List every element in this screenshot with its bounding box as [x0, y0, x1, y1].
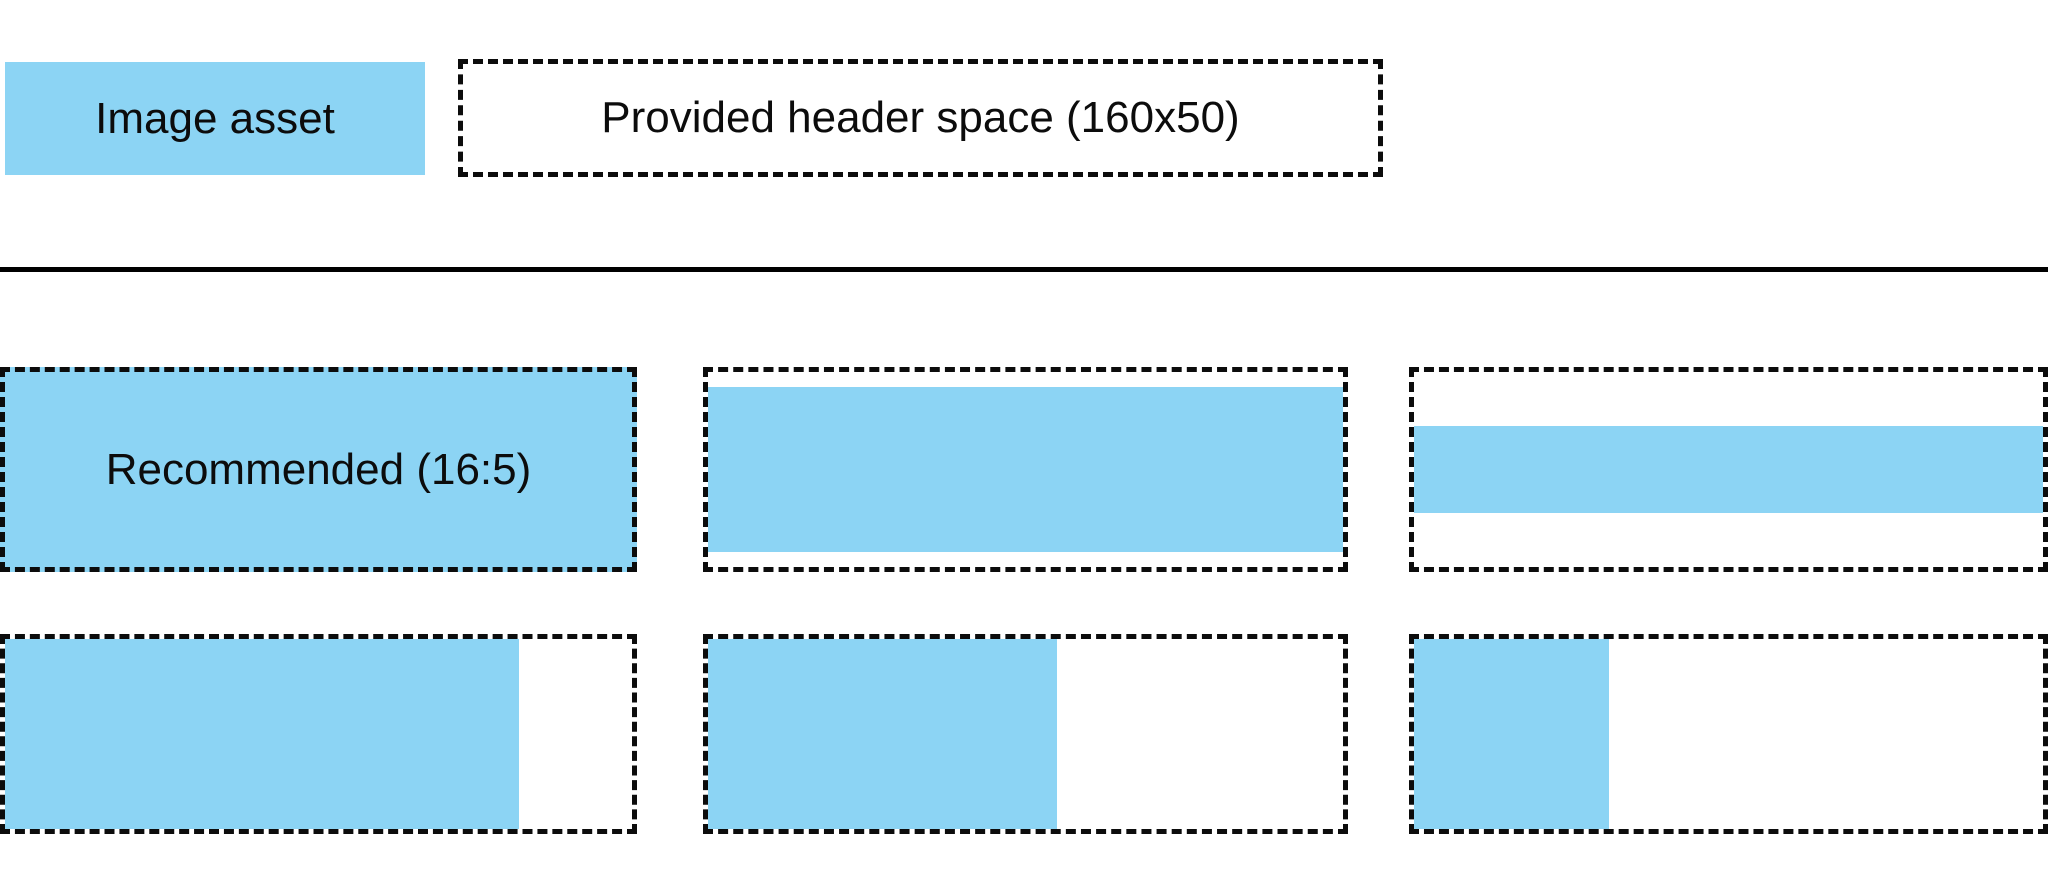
divider-line	[0, 267, 2048, 272]
legend-image-asset-swatch: Image asset	[5, 62, 425, 175]
image-asset-fill	[708, 639, 1057, 829]
image-asset-fill	[1414, 426, 2043, 514]
legend-header-space-label: Provided header space (160x50)	[601, 96, 1239, 140]
example-recommended-16-5: Recommended (16:5)	[0, 367, 637, 572]
image-asset-fill	[708, 387, 1343, 553]
legend-header-space-box: Provided header space (160x50)	[458, 59, 1383, 177]
image-asset-fill: Recommended (16:5)	[5, 372, 632, 567]
image-asset-sizing-diagram: Image asset Provided header space (160x5…	[0, 0, 2048, 896]
image-asset-fill	[1414, 639, 1609, 829]
recommended-label: Recommended (16:5)	[106, 448, 532, 492]
image-asset-fill	[5, 639, 519, 829]
example-full-height-narrow	[1409, 634, 2048, 834]
example-full-width-band	[1409, 367, 2048, 572]
example-full-height-medium	[703, 634, 1348, 834]
example-full-height-wide	[0, 634, 637, 834]
legend-image-asset-label: Image asset	[95, 97, 335, 141]
example-full-width-near-full-height	[703, 367, 1348, 572]
